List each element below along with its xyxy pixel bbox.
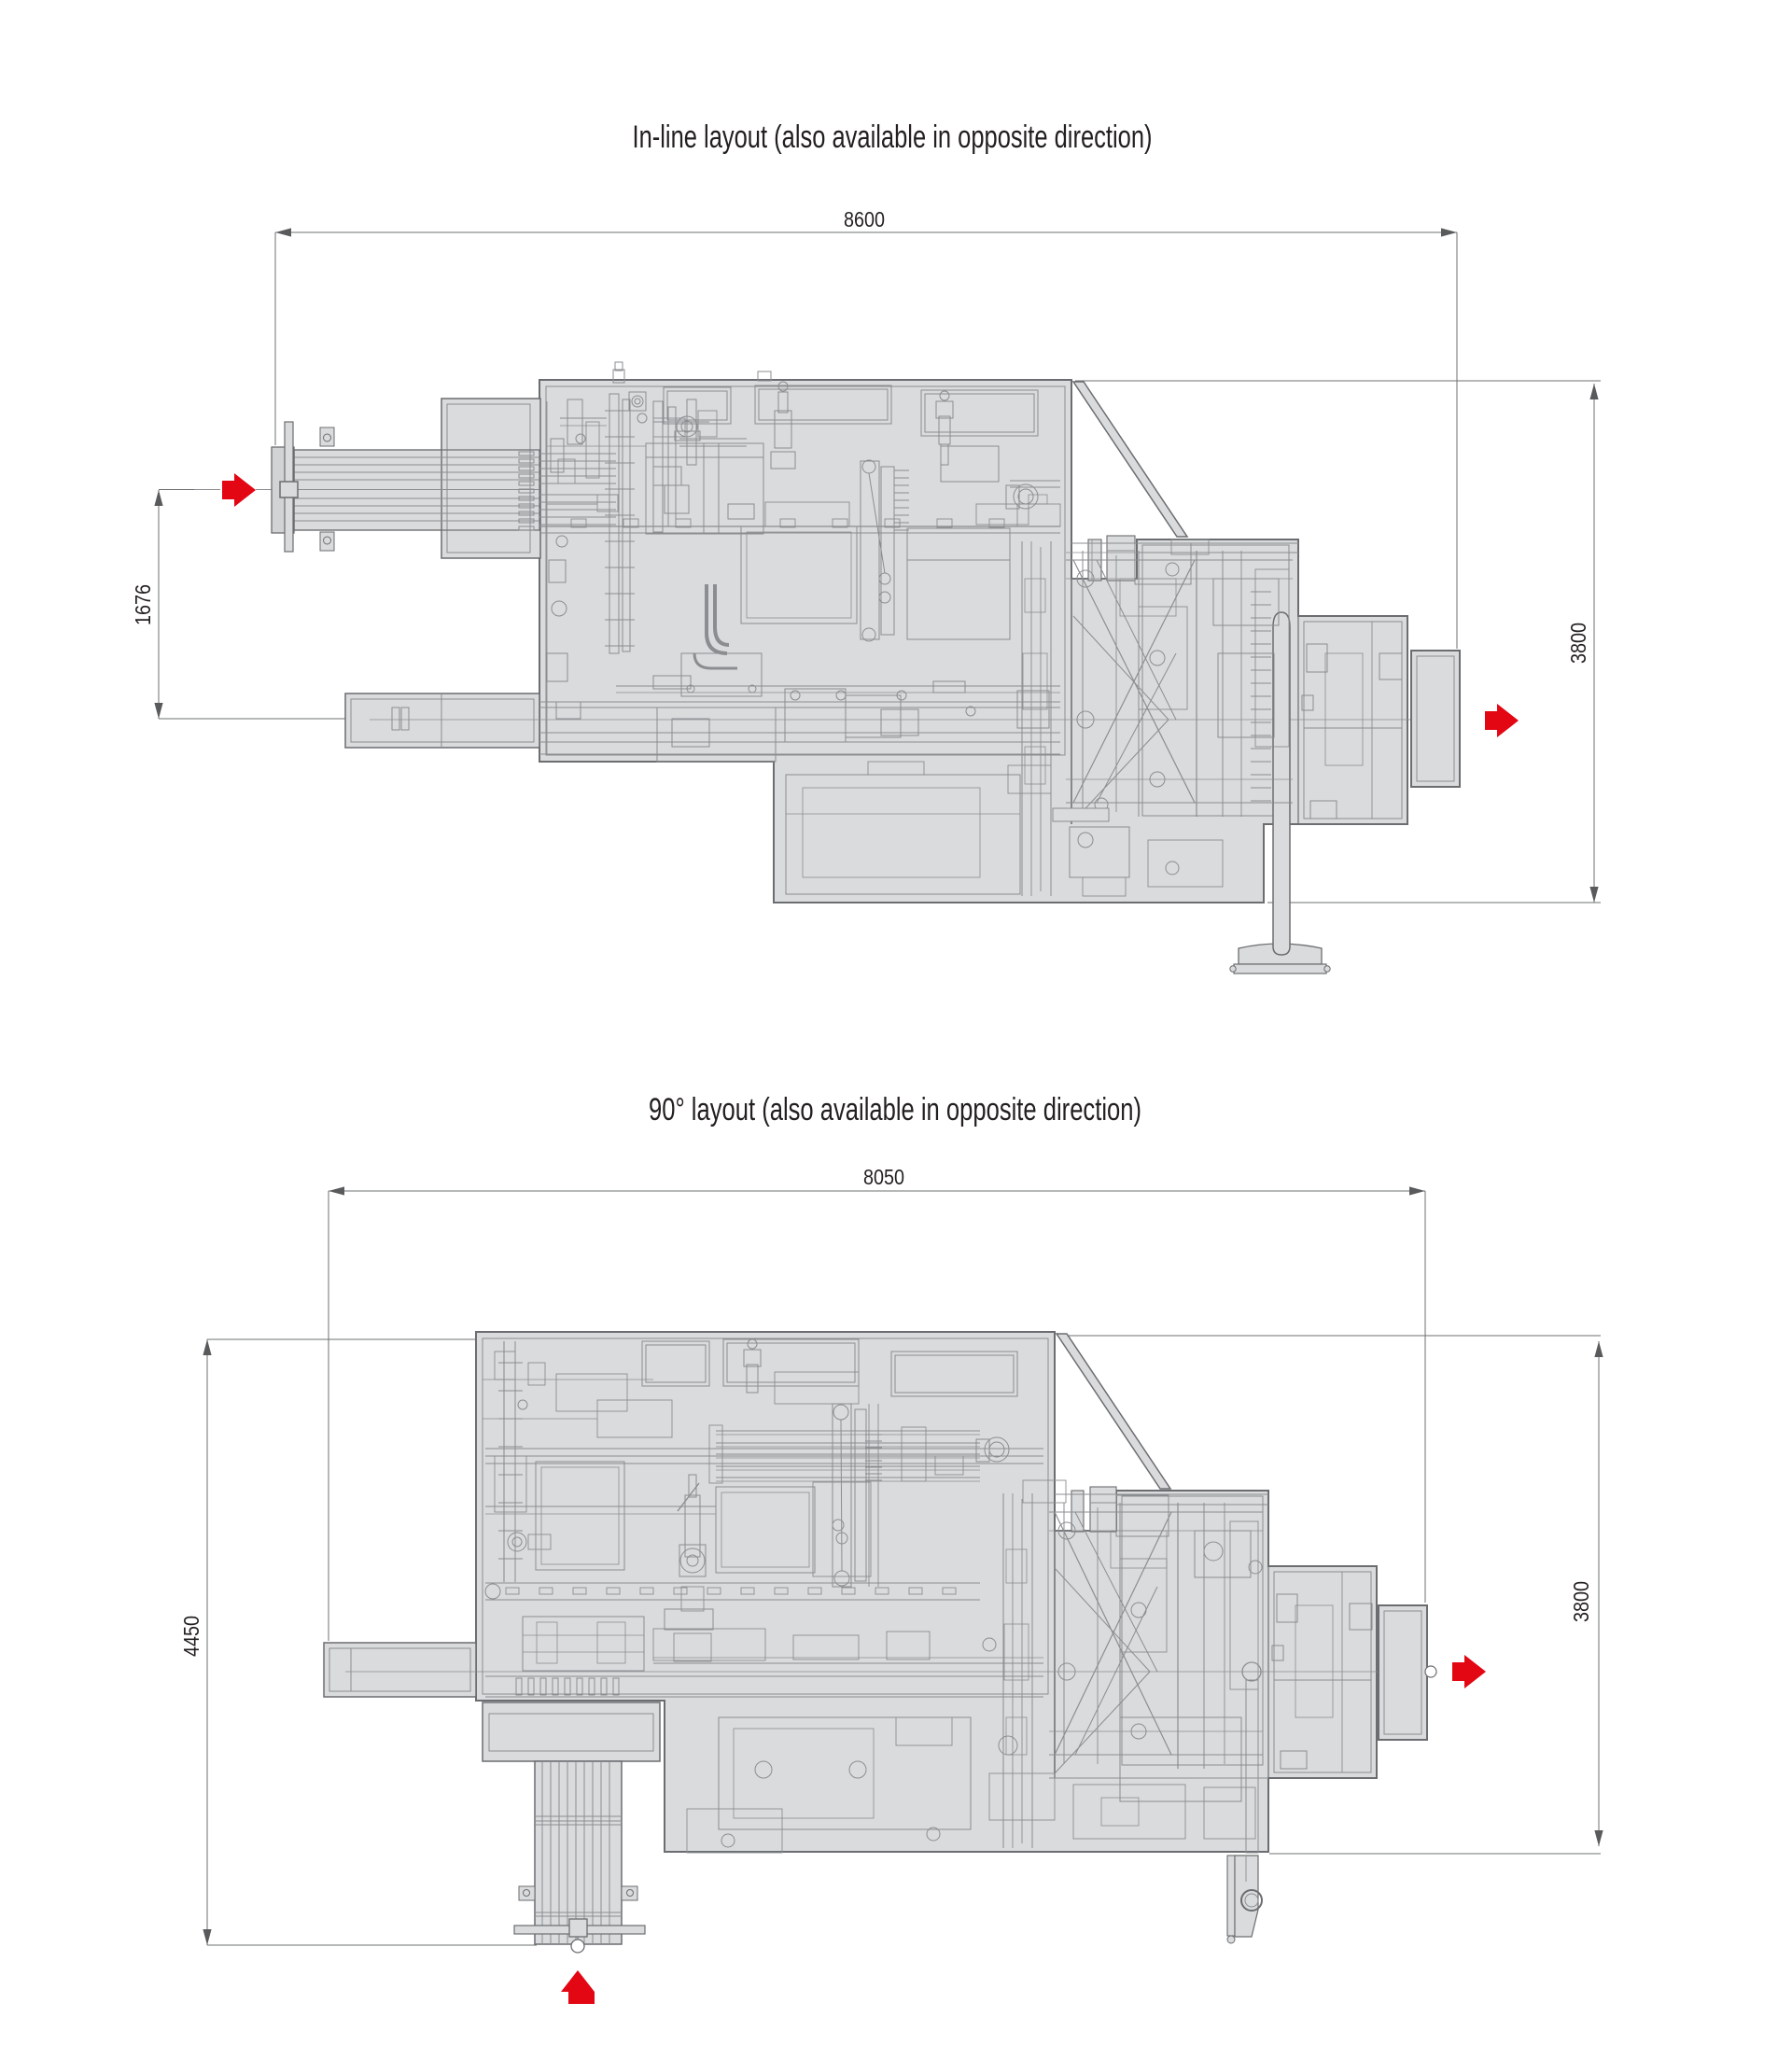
svg-text:3800: 3800 — [1566, 623, 1590, 664]
svg-text:In-line layout (also available: In-line layout (also available in opposi… — [633, 119, 1153, 155]
svg-text:8600: 8600 — [844, 207, 885, 231]
svg-text:3800: 3800 — [1569, 1581, 1593, 1622]
svg-text:1676: 1676 — [131, 584, 155, 625]
svg-text:4450: 4450 — [179, 1616, 203, 1657]
svg-text:90° layout (also available in: 90° layout (also available in opposite d… — [649, 1092, 1141, 1128]
svg-text:8050: 8050 — [863, 1165, 904, 1189]
